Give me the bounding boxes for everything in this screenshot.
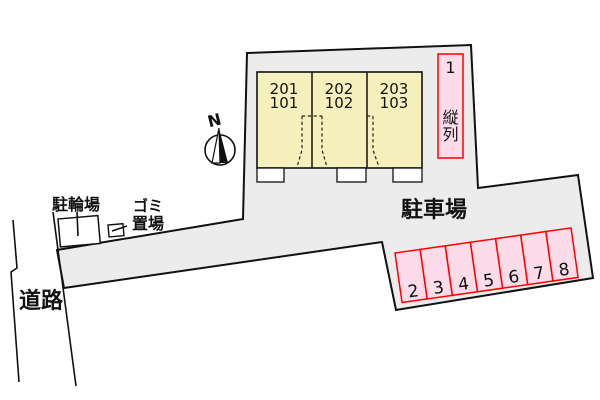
site-plan: 201 101 202 102 203 103 1 縦 列 2 3 4 5 6	[0, 0, 600, 400]
bicycle-label-pointer	[77, 212, 78, 236]
unit-103-label: 103	[380, 94, 409, 112]
bicycle-parking-label: 駐輪場	[52, 195, 100, 214]
bicycle-parking-box	[58, 216, 100, 247]
parking-space-tandem: 1 縦 列	[438, 54, 463, 158]
compass-north-label: N	[206, 110, 224, 132]
garbage-label-line1: ゴミ	[133, 197, 163, 215]
tandem-char-2: 列	[442, 125, 458, 144]
porch-3	[393, 168, 422, 182]
porch-2	[337, 168, 366, 182]
unit-101-label: 101	[270, 94, 299, 112]
garbage-label-line2: 置場	[132, 214, 164, 233]
parking-lot-label: 駐車場	[401, 197, 467, 223]
parking-space-1-number: 1	[445, 58, 455, 77]
road-left-edge	[11, 220, 19, 382]
north-compass: N	[205, 110, 235, 165]
porch-1	[257, 168, 284, 182]
road-label: 道路	[19, 288, 64, 314]
site-plan-svg: 201 101 202 102 203 103 1 縦 列 2 3 4 5 6	[0, 0, 600, 400]
unit-102-label: 102	[325, 94, 354, 112]
